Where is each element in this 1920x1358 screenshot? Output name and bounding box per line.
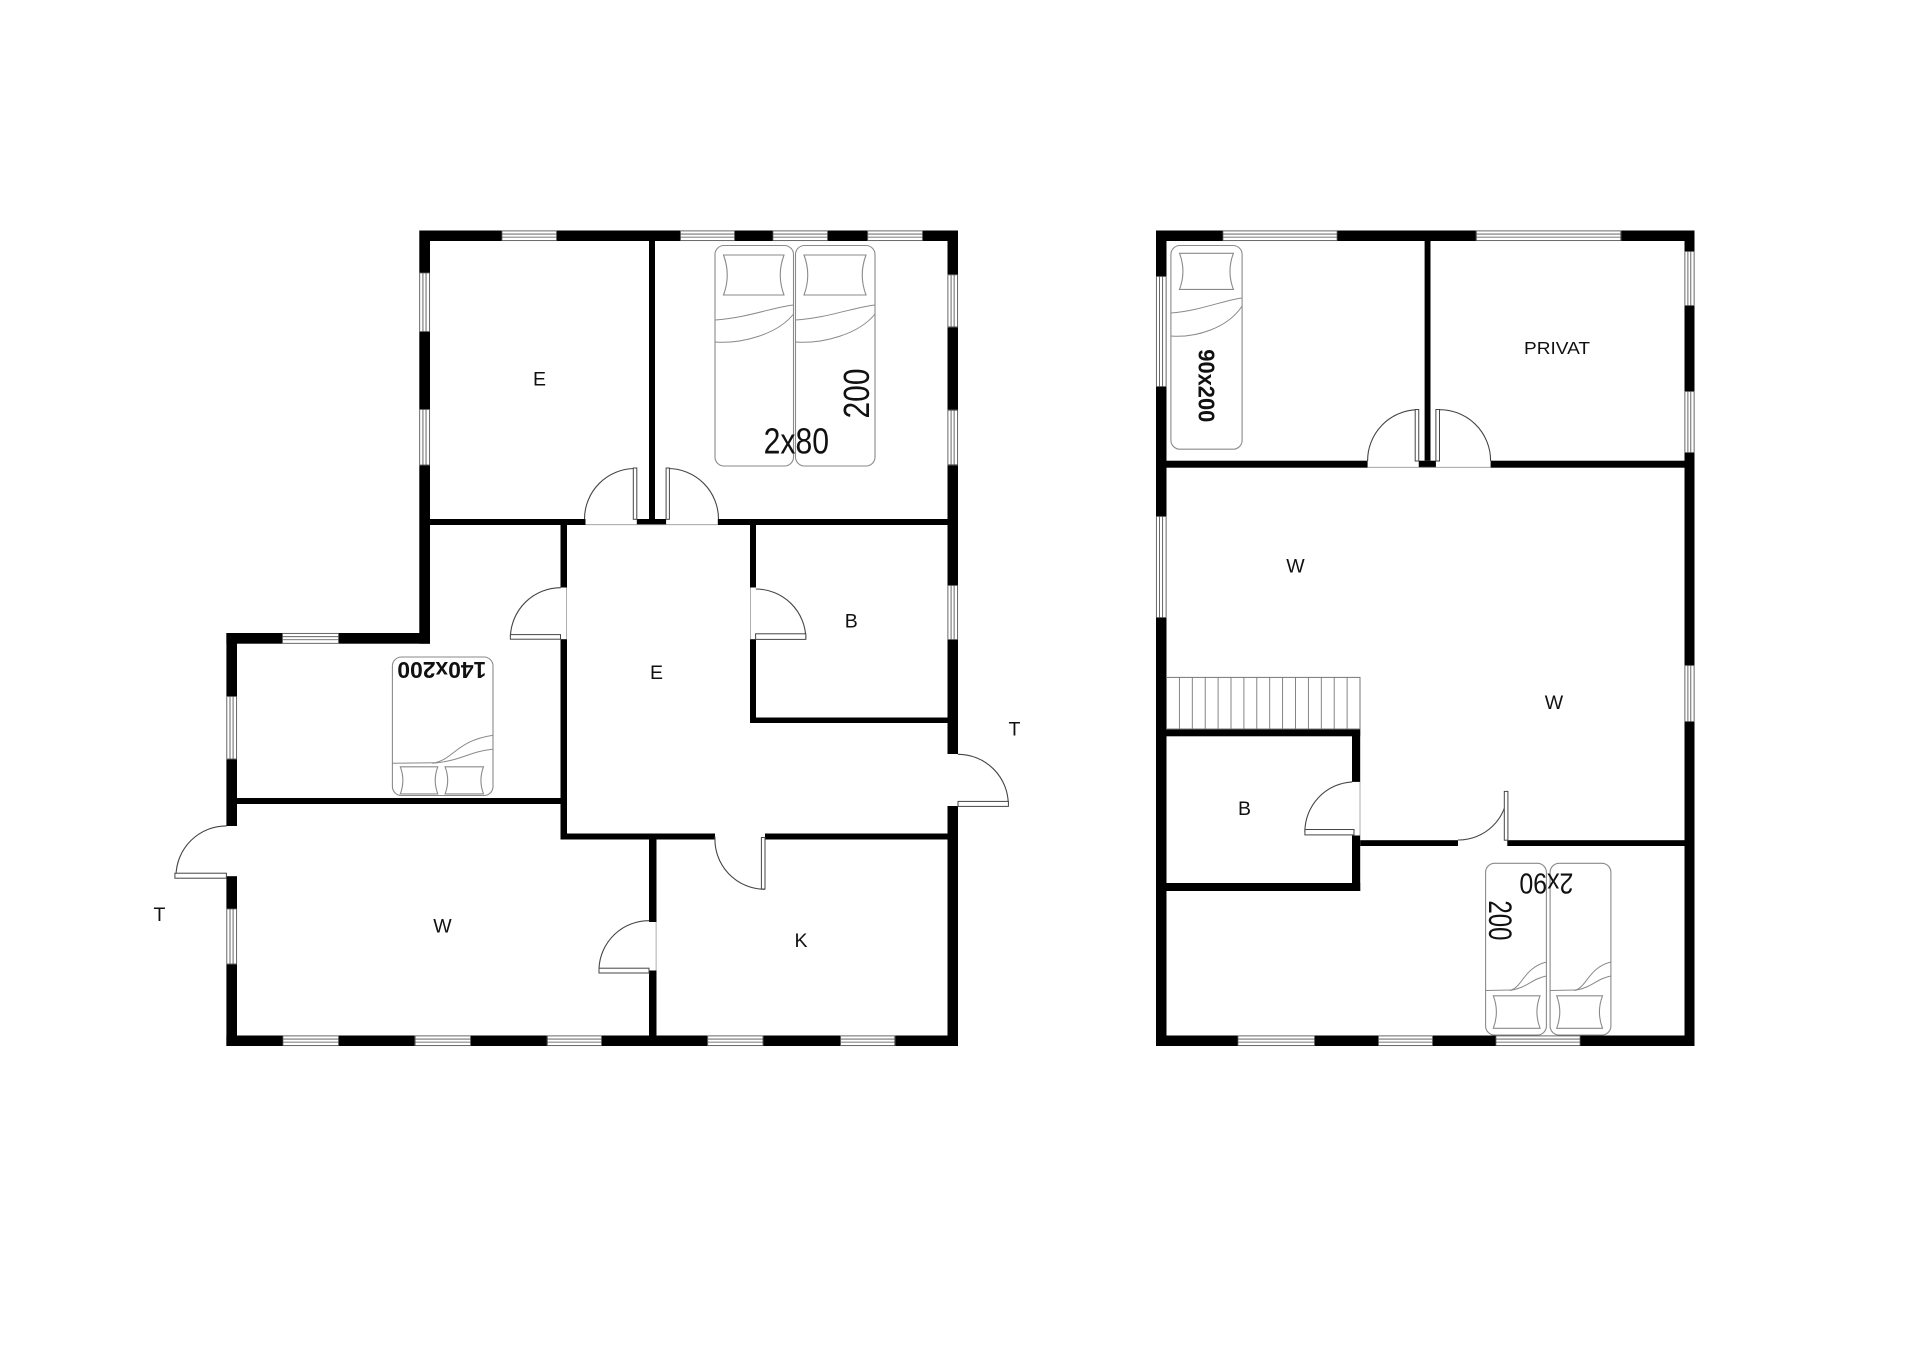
svg-text:140x200: 140x200 [397,657,486,683]
svg-text:K: K [794,930,807,952]
svg-text:E: E [533,368,546,390]
svg-text:200: 200 [836,369,877,419]
svg-text:2x90: 2x90 [1519,866,1573,898]
svg-text:PRIVAT: PRIVAT [1524,338,1590,358]
svg-text:W: W [433,915,452,937]
svg-text:200: 200 [1482,900,1518,940]
svg-text:2x80: 2x80 [764,420,829,461]
svg-text:B: B [845,610,858,632]
svg-text:E: E [650,662,663,684]
svg-text:90x200: 90x200 [1193,349,1219,422]
svg-text:B: B [1238,798,1251,820]
svg-text:W: W [1286,555,1305,577]
svg-text:W: W [1545,692,1564,714]
svg-text:T: T [154,904,166,926]
svg-text:T: T [1009,718,1021,740]
